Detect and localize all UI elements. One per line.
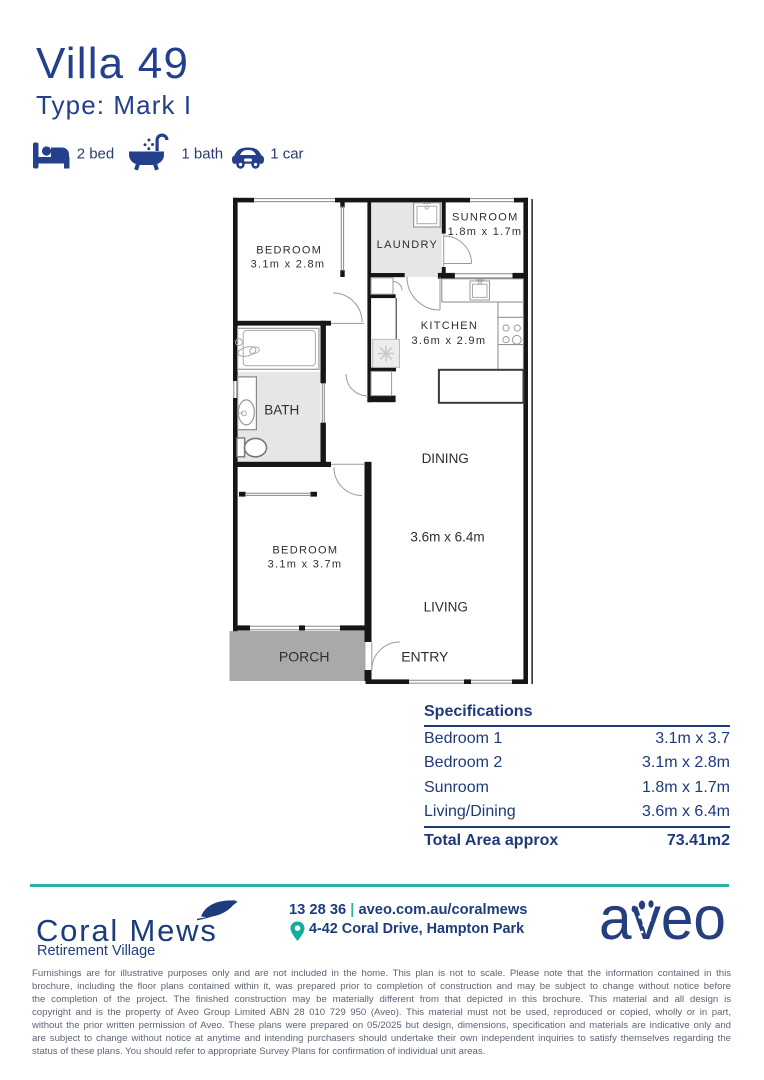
svg-text:3.6m x 2.9m: 3.6m x 2.9m <box>411 335 486 347</box>
svg-text:SUNROOM: SUNROOM <box>452 212 519 224</box>
svg-text:DINING: DINING <box>422 451 469 466</box>
svg-text:1.8m x 1.7m: 1.8m x 1.7m <box>448 226 523 238</box>
svg-text:aveo: aveo <box>599 895 726 947</box>
svg-text:3.1m x 3.7m: 3.1m x 3.7m <box>268 559 343 571</box>
svg-text:BEDROOM: BEDROOM <box>256 245 322 257</box>
svg-text:PORCH: PORCH <box>279 649 330 665</box>
svg-text:LAUNDRY: LAUNDRY <box>377 239 438 251</box>
svg-text:KITCHEN: KITCHEN <box>421 320 478 332</box>
svg-text:LIVING: LIVING <box>424 600 468 615</box>
svg-text:BATH: BATH <box>264 403 299 418</box>
svg-text:BEDROOM: BEDROOM <box>272 545 338 557</box>
svg-text:3.6m x 6.4m: 3.6m x 6.4m <box>410 530 484 545</box>
svg-text:3.1m x 2.8m: 3.1m x 2.8m <box>251 259 326 271</box>
svg-text:ENTRY: ENTRY <box>401 649 449 665</box>
